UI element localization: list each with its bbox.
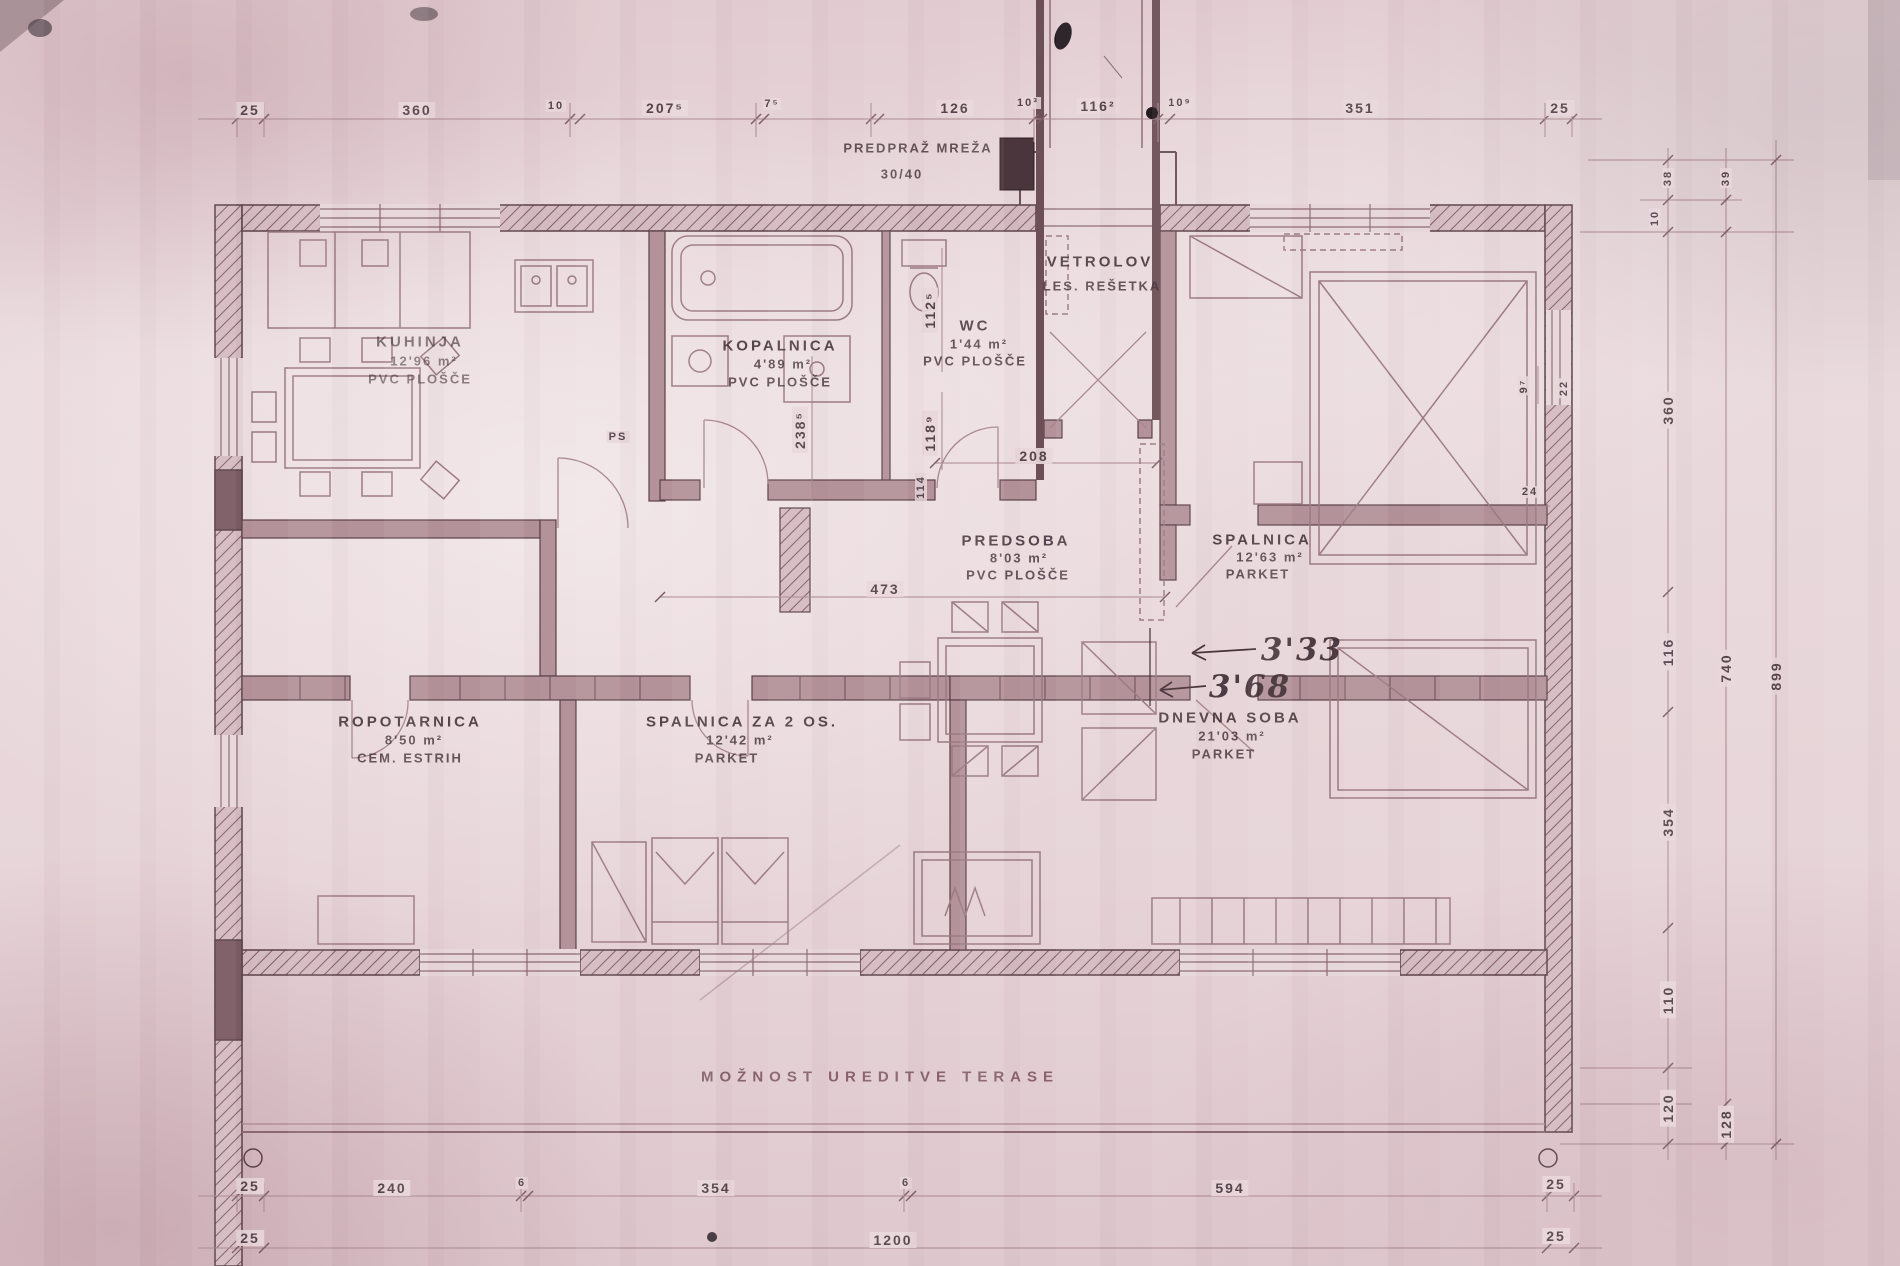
- dim-top-2: 10: [546, 100, 566, 112]
- room-floor-kuhinja: PVC PLOŠČE: [368, 372, 472, 387]
- hand-dim-333: 3'33: [1261, 632, 1343, 668]
- room-label-vetrolov: VETROLOV: [1047, 254, 1154, 271]
- room-label-spalnica2: SPALNICA ZA 2 OS.: [646, 714, 838, 731]
- doormat: [1000, 138, 1034, 190]
- room-area-ropotarnica: 8'50 m²: [385, 733, 443, 748]
- dim-bot1-0: 25: [236, 1178, 264, 1194]
- entrance-corridor: [1000, 0, 1176, 480]
- dim-top-5: 126: [936, 100, 973, 116]
- dim-top-0: 25: [236, 102, 264, 118]
- hand-dim-368: 3'68: [1209, 669, 1291, 705]
- room-floor-spalnica2: PARKET: [695, 751, 759, 766]
- dim-r1-5: 110: [1660, 982, 1676, 1019]
- dim-r2-2: 128: [1718, 1105, 1734, 1142]
- dim-r1-1: 10: [1649, 208, 1661, 228]
- dim-top-10: 25: [1546, 100, 1574, 116]
- room-label-predsoba: PREDSOBA: [961, 533, 1070, 550]
- dim-bot1-6: 25: [1542, 1176, 1570, 1192]
- dim-top-4: 7⁵: [762, 98, 781, 110]
- room-area-spalnica2: 12'42 m²: [706, 733, 774, 748]
- room-floor-spalnica: PARKET: [1226, 567, 1290, 582]
- dim-bot1-3: 354: [697, 1180, 734, 1196]
- terrace-note: MOŽNOST UREDITVE TERASE: [701, 1069, 1059, 1086]
- room-area-kuhinja: 12'96 m²: [390, 354, 458, 369]
- room-label-spalnica: SPALNICA: [1212, 532, 1312, 549]
- dim-97: 9⁷: [1518, 377, 1530, 396]
- dim-top-7: 116²: [1076, 98, 1119, 114]
- entrance-label: PREDPRAŽ MREŽA: [843, 141, 992, 156]
- room-floor-dnevna: PARKET: [1192, 747, 1256, 762]
- dim-bot1-1: 240: [373, 1180, 410, 1196]
- room-label-ropotarnica: ROPOTARNICA: [338, 714, 482, 731]
- dim-473: 473: [866, 581, 903, 597]
- room-floor-predsoba: PVC PLOŠČE: [966, 568, 1070, 583]
- dim-114: 114: [915, 473, 927, 501]
- room-floor-wc: PVC PLOŠČE: [923, 354, 1027, 369]
- room-floor-ropotarnica: CEM. ESTRIH: [357, 751, 463, 766]
- entrance-size: 30/40: [881, 167, 924, 182]
- room-area-spalnica: 12'63 m²: [1236, 550, 1304, 565]
- terrace-edge: [242, 1124, 1545, 1132]
- dim-top-1: 360: [398, 102, 435, 118]
- room-label-kuhinja: KUHINJA: [376, 334, 464, 351]
- dim-r1-6: 120: [1660, 1089, 1676, 1126]
- dim-top-6: 10³: [1015, 97, 1041, 109]
- room-area-predsoba: 8'03 m²: [990, 551, 1048, 566]
- ps-label: PS: [607, 431, 630, 443]
- dim-r1-0: 38: [1662, 168, 1674, 188]
- dim-top-9: 351: [1341, 100, 1378, 116]
- dim-22: 22: [1558, 378, 1570, 398]
- room-label-kopalnica: KOPALNICA: [722, 338, 837, 355]
- dim-bot2-1: 1200: [869, 1232, 916, 1248]
- dim-top-8: 10⁹: [1166, 97, 1193, 109]
- dim-bot1-4: 6: [900, 1177, 912, 1189]
- dim-r2-0: 39: [1720, 168, 1732, 188]
- dim-r1-3: 116: [1660, 634, 1676, 671]
- room-label-dnevna: DNEVNA SOBA: [1158, 710, 1301, 727]
- dim-top-3: 207⁵: [642, 100, 688, 116]
- dim-r2-1: 740: [1718, 649, 1734, 686]
- room-area-dnevna: 21'03 m²: [1198, 729, 1266, 744]
- dim-bot1-5: 594: [1211, 1180, 1248, 1196]
- dim-bot2-0: 25: [236, 1230, 264, 1246]
- dim-bot1-2: 6: [516, 1177, 528, 1189]
- room-floor-kopalnica: PVC PLOŠČE: [728, 375, 832, 390]
- dim-118: 118⁹: [922, 410, 938, 455]
- dim-r1-2: 360: [1660, 391, 1676, 428]
- dim-bot2-2: 25: [1542, 1228, 1570, 1244]
- room-label-wc: WC: [960, 318, 991, 335]
- blueprint-paper: 25 360 10 207⁵ 7⁵ 126 10³ 116² 10⁹ 351 2…: [0, 0, 1900, 1266]
- dim-208: 208: [1015, 448, 1052, 464]
- dim-r3-0: 899: [1768, 657, 1784, 694]
- stains: [0, 0, 1900, 1242]
- room-sub-vetrolov: LES. REŠETKA: [1043, 279, 1162, 294]
- dim-24: 24: [1520, 486, 1540, 498]
- dim-112: 112⁵: [922, 287, 938, 332]
- dim-r1-4: 354: [1660, 803, 1676, 840]
- dim-238: 238⁵: [792, 407, 808, 453]
- room-area-wc: 1'44 m²: [950, 337, 1008, 352]
- room-area-kopalnica: 4'89 m²: [754, 357, 812, 372]
